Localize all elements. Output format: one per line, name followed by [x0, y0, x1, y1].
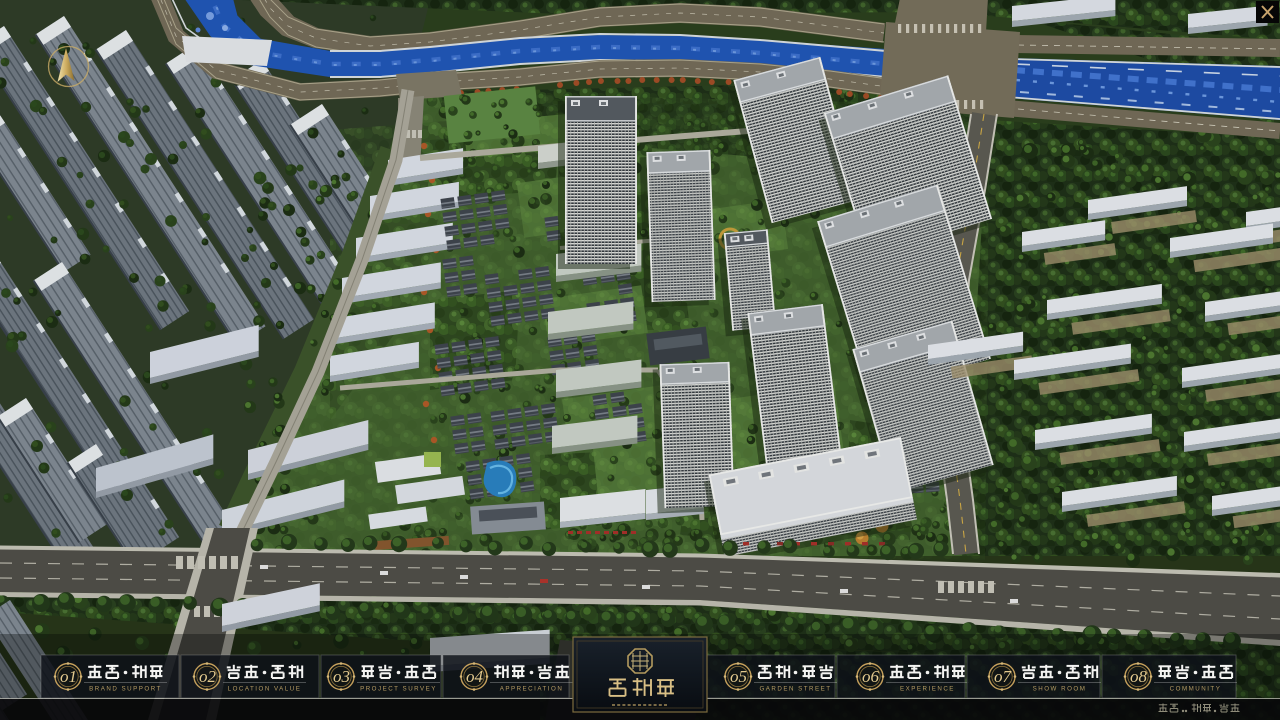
svg-text:o1: o1 — [60, 667, 77, 686]
svg-text:BRAND SUPPORT: BRAND SUPPORT — [89, 686, 162, 693]
svg-text:GARDEN STREET: GARDEN STREET — [759, 686, 831, 693]
svg-text:o6: o6 — [862, 667, 880, 686]
svg-text:o4: o4 — [466, 667, 484, 686]
svg-text:SHOW ROOM: SHOW ROOM — [1033, 686, 1087, 693]
svg-text:o5: o5 — [730, 667, 747, 686]
svg-text:EXPERIENCE: EXPERIENCE — [900, 686, 955, 693]
svg-text:APPRECIATION: APPRECIATION — [500, 686, 564, 693]
svg-text:o7: o7 — [994, 667, 1013, 686]
svg-text:o3: o3 — [333, 667, 350, 686]
svg-text:COMMUNITY: COMMUNITY — [1170, 686, 1222, 693]
svg-text:PROJECT SURVEY: PROJECT SURVEY — [360, 686, 437, 693]
svg-text:o2: o2 — [199, 667, 217, 686]
svg-text:LOCATION VALUE: LOCATION VALUE — [228, 686, 302, 693]
svg-text:o8: o8 — [1130, 667, 1148, 686]
